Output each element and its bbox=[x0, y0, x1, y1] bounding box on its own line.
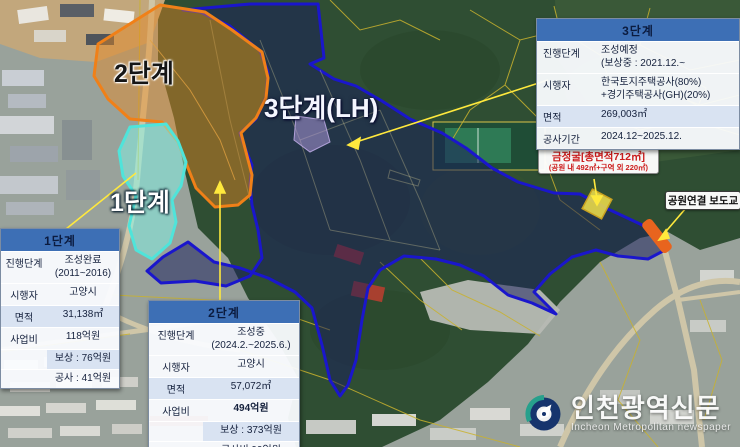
row-value: 고양시 bbox=[203, 356, 299, 377]
row-label: 면적 bbox=[149, 378, 203, 399]
info-table-phase3: 3단계 진행단계 조성예정 (보상중 : 2021.12.~ 시행자 한국토지주… bbox=[536, 18, 740, 150]
row-value: 494억원 bbox=[203, 400, 299, 421]
row-label: 면적 bbox=[1, 306, 47, 327]
table-row: 진행단계 조성중 (2024.2.~2025.6.) bbox=[149, 324, 299, 356]
newspaper-name: 인천광역신문 bbox=[571, 395, 731, 421]
newspaper-logo-icon bbox=[524, 394, 564, 434]
table-row: 면적 31,138㎡ bbox=[1, 306, 119, 328]
row-label: 시행자 bbox=[1, 284, 47, 305]
table-row: 면적 57,072㎡ bbox=[149, 378, 299, 400]
row-label: 사업비 bbox=[149, 400, 203, 421]
table-row: 공사비 99억원 bbox=[149, 442, 299, 447]
row-value: 118억원 bbox=[47, 328, 119, 349]
row-value: 2024.12~2025.12. bbox=[597, 128, 739, 149]
table-row: 시행자 고양시 bbox=[1, 284, 119, 306]
table-row: 사업비 494억원 bbox=[149, 400, 299, 422]
table-row: 진행단계 조성예정 (보상중 : 2021.12.~ bbox=[537, 42, 739, 74]
bridge-callout: 공원연결 보도교 bbox=[665, 191, 740, 210]
table-row: 보상 : 373억원 bbox=[149, 422, 299, 442]
row-value: 조성예정 (보상중 : 2021.12.~ bbox=[597, 42, 739, 73]
row-value: 조성중 (2024.2.~2025.6.) bbox=[203, 324, 299, 355]
row-value: 조성완료 (2011~2016) bbox=[47, 252, 119, 283]
info-table-phase1: 1단계 진행단계 조성완료 (2011~2016) 시행자 고양시 면적 31,… bbox=[0, 228, 120, 389]
newspaper-subtitle: Incheon Metropolitan newspaper bbox=[571, 422, 731, 433]
table-row: 면적 269,003㎡ bbox=[537, 106, 739, 128]
row-label: 진행단계 bbox=[537, 42, 597, 73]
row-label bbox=[1, 370, 47, 389]
row-label bbox=[1, 350, 47, 369]
row-label bbox=[149, 442, 203, 447]
table-header: 3단계 bbox=[537, 19, 739, 42]
table-row: 시행자 고양시 bbox=[149, 356, 299, 378]
row-label: 공사기간 bbox=[537, 128, 597, 149]
table-header: 1단계 bbox=[1, 229, 119, 252]
row-value: 한국토지주택공사(80%) +경기주택공사(GH)(20%) bbox=[597, 74, 739, 105]
geumjeonggul-callout: 금정굴[총면적712㎡] (공원 내 492㎡+구역 외 220㎡) bbox=[538, 148, 659, 174]
row-label: 시행자 bbox=[537, 74, 597, 105]
newspaper-watermark: 인천광역신문 Incheon Metropolitan newspaper bbox=[524, 394, 731, 434]
info-table-phase2: 2단계 진행단계 조성중 (2024.2.~2025.6.) 시행자 고양시 면… bbox=[148, 300, 300, 447]
row-label: 시행자 bbox=[149, 356, 203, 377]
row-label: 면적 bbox=[537, 106, 597, 127]
table-header: 2단계 bbox=[149, 301, 299, 324]
table-row: 시행자 한국토지주택공사(80%) +경기주택공사(GH)(20%) bbox=[537, 74, 739, 106]
row-value: 보상 : 76억원 bbox=[47, 350, 119, 369]
row-label: 진행단계 bbox=[149, 324, 203, 355]
row-label: 사업비 bbox=[1, 328, 47, 349]
row-value: 269,003㎡ bbox=[597, 106, 739, 127]
geumjeonggul-title: 금정굴[총면적712㎡] bbox=[539, 151, 658, 163]
table-row: 사업비 118억원 bbox=[1, 328, 119, 350]
table-row: 진행단계 조성완료 (2011~2016) bbox=[1, 252, 119, 284]
row-value: 보상 : 373억원 bbox=[203, 422, 299, 441]
table-row: 공사 : 41억원 bbox=[1, 370, 119, 389]
row-value: 57,072㎡ bbox=[203, 378, 299, 399]
row-value: 31,138㎡ bbox=[47, 306, 119, 327]
geumjeonggul-subtitle: (공원 내 492㎡+구역 외 220㎡) bbox=[539, 163, 658, 172]
row-value: 고양시 bbox=[47, 284, 119, 305]
row-label: 진행단계 bbox=[1, 252, 47, 283]
table-row: 공사기간 2024.12~2025.12. bbox=[537, 128, 739, 149]
row-label bbox=[149, 422, 203, 441]
table-row: 보상 : 76억원 bbox=[1, 350, 119, 370]
row-value: 공사 : 41억원 bbox=[47, 370, 119, 389]
row-value: 공사비 99억원 bbox=[203, 442, 299, 447]
news-map-graphic: 2단계 1단계 3단계(LH) 금정굴[총면적712㎡] (공원 내 492㎡+… bbox=[0, 0, 740, 447]
